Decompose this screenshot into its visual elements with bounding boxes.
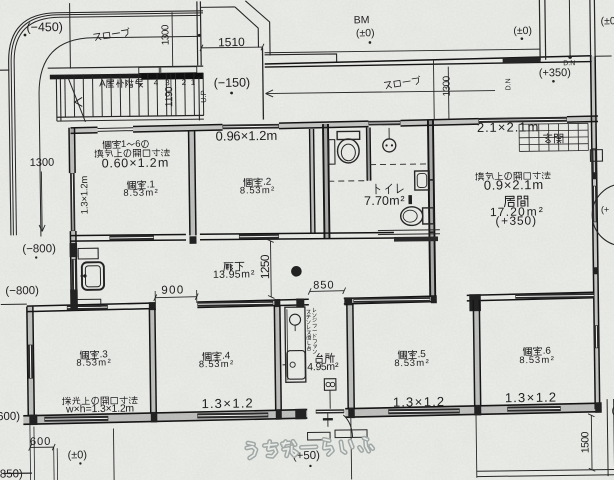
svg-text:2: 2 [507, 120, 514, 135]
svg-text:2: 2 [245, 395, 252, 410]
svg-text:²: ² [107, 357, 110, 368]
svg-text:(±0): (±0) [600, 15, 614, 27]
svg-text:m: m [541, 355, 549, 366]
svg-text:1510: 1510 [218, 35, 245, 49]
svg-text:5: 5 [517, 214, 524, 228]
svg-text:1: 1 [191, 78, 196, 87]
svg-text:5: 5 [133, 188, 138, 199]
svg-text:(+350): (+350) [539, 67, 571, 79]
svg-text:(±0): (±0) [356, 27, 375, 39]
svg-text:6: 6 [114, 156, 121, 170]
svg-text:²: ² [155, 187, 158, 198]
svg-text:(+: (+ [601, 204, 609, 214]
svg-text:×: × [241, 128, 249, 143]
svg-text:m: m [158, 156, 169, 170]
svg-text:m: m [125, 403, 134, 415]
svg-text:m: m [389, 194, 400, 208]
svg-text:1: 1 [393, 395, 400, 410]
svg-text:2: 2 [477, 120, 484, 135]
svg-text:3: 3 [165, 78, 170, 87]
svg-text:×: × [527, 390, 535, 405]
svg-text:0: 0 [524, 214, 531, 228]
svg-text:1: 1 [536, 390, 543, 405]
svg-text:2: 2 [150, 156, 157, 170]
svg-text:(−150): (−150) [214, 76, 251, 90]
svg-text:3: 3 [406, 394, 413, 409]
svg-text:3: 3 [219, 269, 225, 281]
svg-text:(−800): (−800) [22, 243, 56, 255]
svg-text:.: . [485, 120, 489, 135]
svg-text:3: 3 [255, 185, 260, 196]
svg-text:m: m [532, 177, 543, 192]
svg-text:(−450): (−450) [26, 20, 63, 34]
svg-text:1: 1 [424, 394, 431, 409]
svg-text:5: 5 [86, 358, 91, 369]
svg-text:3: 3 [214, 359, 219, 370]
svg-text:3: 3 [92, 357, 97, 368]
svg-text:.: . [544, 390, 548, 405]
svg-text:.: . [525, 355, 528, 366]
svg-text:.: . [432, 394, 436, 409]
svg-text:6: 6 [30, 436, 36, 448]
svg-text:²: ² [551, 355, 554, 366]
svg-text:m: m [145, 188, 153, 199]
svg-text:ジ: ジ [312, 318, 317, 324]
svg-text:m: m [241, 268, 250, 280]
svg-text:5: 5 [208, 359, 213, 370]
svg-text:²: ² [539, 204, 543, 218]
svg-text:5: 5 [529, 355, 534, 366]
svg-text:1: 1 [505, 390, 512, 405]
svg-text:3: 3 [410, 358, 415, 369]
svg-text:1: 1 [524, 177, 531, 192]
svg-text:1: 1 [201, 396, 208, 411]
svg-text:3: 3 [214, 396, 221, 411]
svg-text:(−800): (−800) [5, 285, 39, 297]
svg-text:.: . [515, 119, 519, 134]
svg-text:8: 8 [240, 185, 245, 196]
svg-text:8: 8 [519, 355, 524, 366]
svg-text:.: . [109, 156, 113, 170]
svg-text:2: 2 [549, 390, 556, 405]
svg-text:1: 1 [232, 396, 239, 411]
svg-text:m: m [416, 358, 424, 369]
svg-text:m: m [266, 128, 277, 143]
svg-text:.: . [241, 396, 245, 411]
svg-text:0: 0 [327, 279, 333, 291]
svg-text:²: ² [426, 358, 429, 369]
svg-text:.: . [129, 188, 132, 199]
svg-text:0: 0 [177, 284, 184, 296]
svg-text:m: m [262, 185, 270, 196]
svg-text:2: 2 [182, 78, 187, 87]
svg-text:.: . [401, 394, 405, 409]
svg-text:1: 1 [121, 139, 126, 150]
svg-text:.: . [82, 358, 85, 369]
svg-text:0: 0 [160, 24, 171, 30]
svg-text:²: ² [400, 194, 404, 208]
svg-text:1: 1 [519, 119, 526, 134]
svg-text:A: A [99, 78, 106, 89]
svg-text:1300: 1300 [30, 157, 55, 169]
svg-text:(−850): (−850) [0, 468, 23, 480]
svg-text:×: × [504, 177, 512, 192]
svg-text:m: m [221, 359, 229, 370]
svg-text:5: 5 [404, 358, 409, 369]
svg-text:.: . [400, 358, 403, 369]
svg-text:4: 4 [154, 78, 159, 87]
svg-text:3: 3 [139, 188, 144, 199]
svg-text:D.N: D.N [505, 78, 512, 90]
svg-text:U.P: U.P [199, 90, 208, 103]
svg-text:×: × [498, 120, 506, 135]
svg-text:2: 2 [437, 394, 444, 409]
svg-text:(±0): (±0) [513, 25, 532, 37]
svg-text:9: 9 [161, 285, 168, 297]
svg-text:0: 0 [169, 285, 176, 297]
svg-text:0: 0 [121, 156, 128, 170]
svg-text:2: 2 [512, 177, 519, 192]
svg-text:.: . [205, 359, 208, 370]
svg-text:0: 0 [44, 436, 50, 448]
svg-text:5: 5 [320, 279, 326, 291]
svg-text:(: ( [495, 214, 499, 228]
svg-text:8: 8 [76, 358, 81, 369]
svg-text:.: . [210, 396, 214, 411]
svg-text:0: 0 [382, 194, 389, 208]
svg-text:×: × [415, 394, 423, 409]
svg-text:.: . [513, 390, 517, 405]
svg-text:m: m [98, 357, 106, 368]
svg-text:+: + [501, 214, 508, 228]
svg-text:(−600): (−600) [0, 411, 20, 423]
svg-text:7: 7 [364, 194, 371, 208]
svg-text:²: ² [271, 185, 274, 196]
svg-text:m: m [527, 119, 538, 134]
svg-text:m: m [326, 361, 335, 373]
svg-text:): ) [532, 213, 536, 227]
svg-text:3: 3 [535, 355, 540, 366]
svg-text:9: 9 [496, 177, 503, 192]
svg-text:6: 6 [135, 139, 140, 150]
svg-text:×: × [223, 396, 231, 411]
svg-text:²: ² [230, 359, 233, 370]
svg-text:6: 6 [233, 128, 240, 143]
svg-text:0: 0 [579, 431, 591, 437]
svg-text:.: . [145, 156, 149, 170]
svg-text:.: . [246, 185, 249, 196]
svg-text:1: 1 [138, 156, 145, 170]
svg-text:5: 5 [249, 185, 254, 196]
svg-text:m: m [79, 176, 90, 184]
svg-text:8: 8 [199, 359, 204, 370]
svg-text:3: 3 [509, 214, 516, 228]
svg-text:0: 0 [37, 436, 43, 448]
svg-text:×: × [129, 156, 136, 170]
svg-text:0: 0 [164, 86, 175, 92]
svg-text:(±0): (±0) [67, 449, 87, 461]
svg-text:3: 3 [518, 390, 525, 405]
svg-text:8: 8 [394, 358, 399, 369]
svg-text:1: 1 [489, 120, 496, 135]
svg-text:0: 0 [102, 156, 109, 170]
svg-text:8: 8 [313, 280, 319, 292]
svg-text:0: 0 [484, 178, 491, 193]
svg-text:BM: BM [354, 14, 370, 26]
svg-text:0: 0 [258, 254, 272, 261]
svg-text:8: 8 [123, 188, 128, 199]
svg-text:5: 5 [235, 269, 241, 281]
svg-text:0: 0 [441, 75, 452, 81]
